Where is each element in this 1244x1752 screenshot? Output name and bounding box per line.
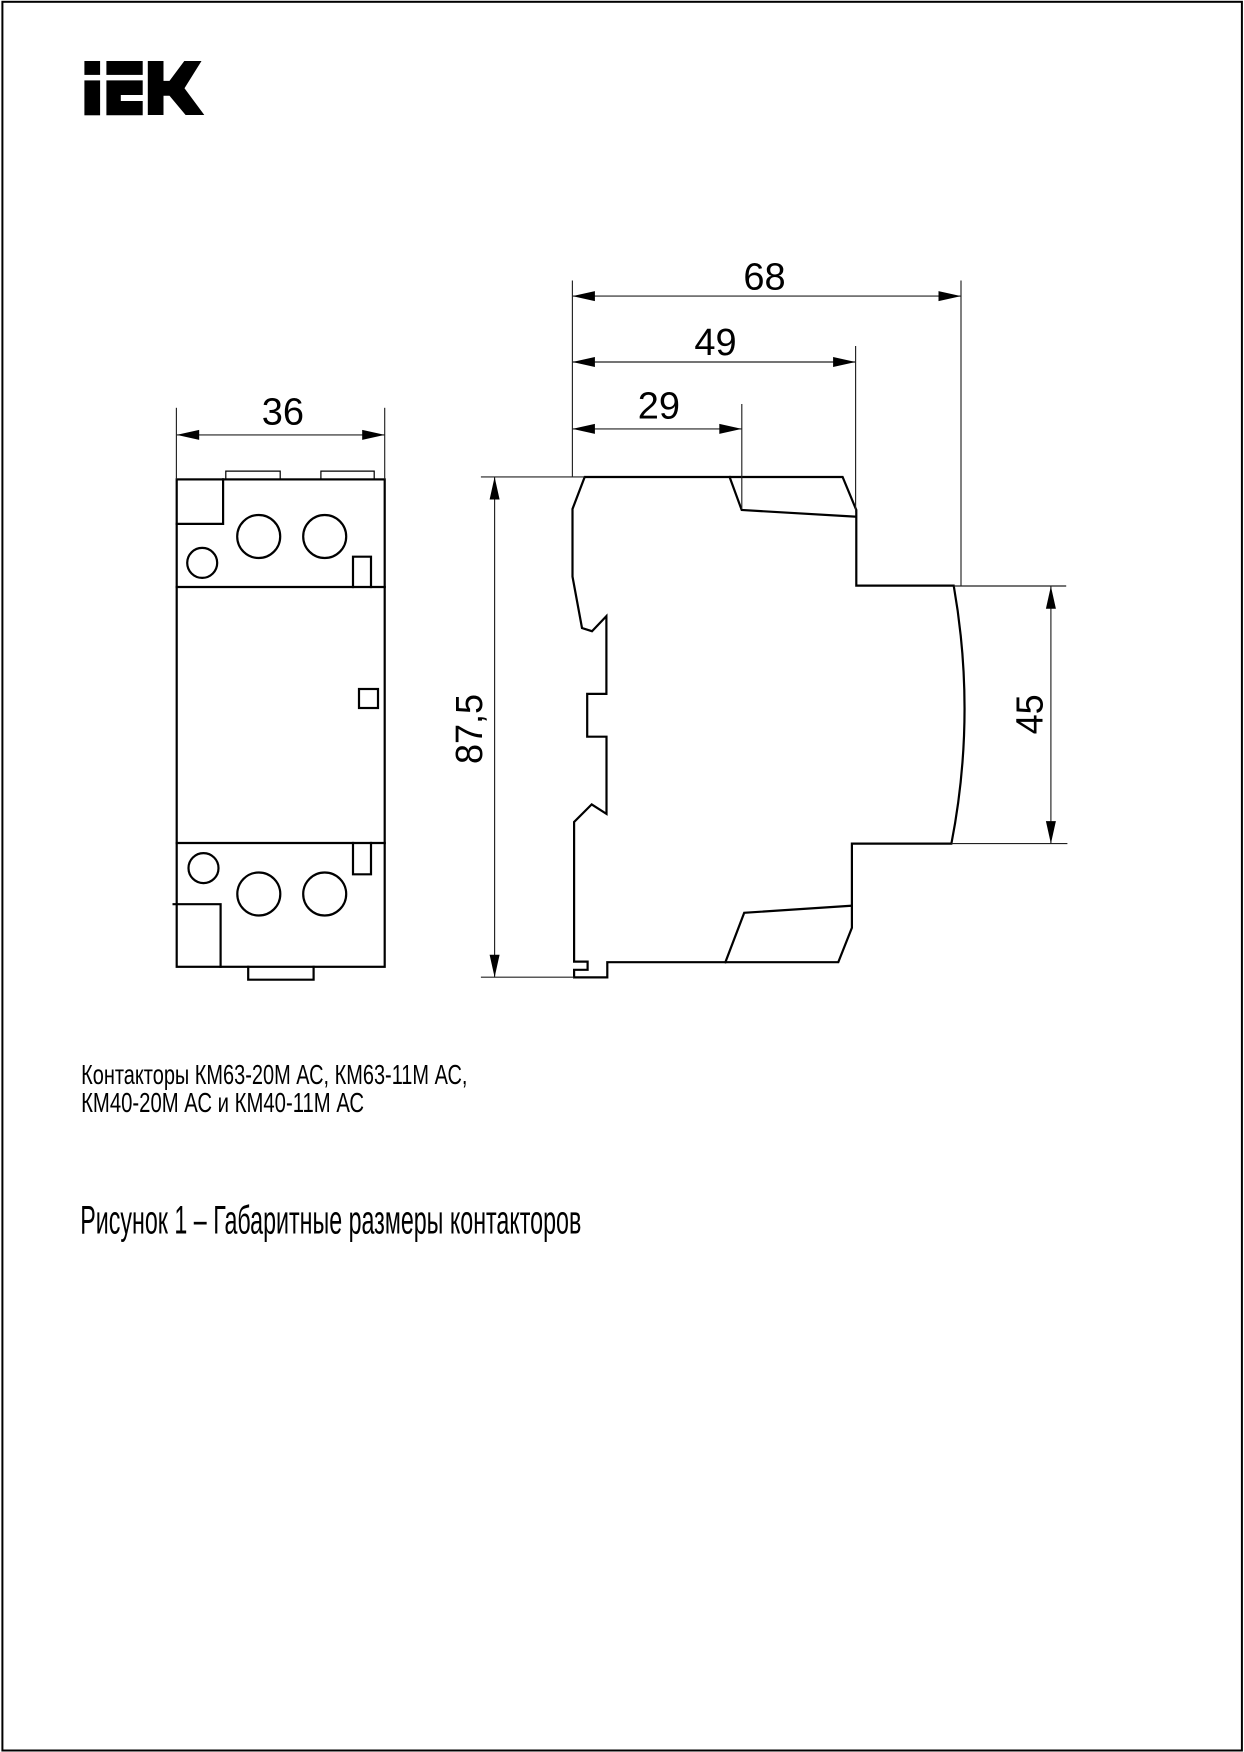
svg-text:45: 45	[1010, 694, 1052, 734]
svg-text:87,5: 87,5	[449, 694, 491, 764]
svg-text:68: 68	[743, 256, 785, 298]
svg-text:49: 49	[694, 322, 736, 364]
svg-text:Контакторы КМ63-20М АС, КМ63-1: Контакторы КМ63-20М АС, КМ63-11М АС,	[81, 1059, 467, 1090]
svg-text:Рисунок 1 – Габаритные размеры: Рисунок 1 – Габаритные размеры контактор…	[80, 1198, 581, 1242]
svg-text:36: 36	[262, 392, 304, 434]
svg-text:КМ40-20М АС и КМ40-11М АС: КМ40-20М АС и КМ40-11М АС	[81, 1087, 364, 1118]
svg-text:29: 29	[638, 386, 680, 428]
